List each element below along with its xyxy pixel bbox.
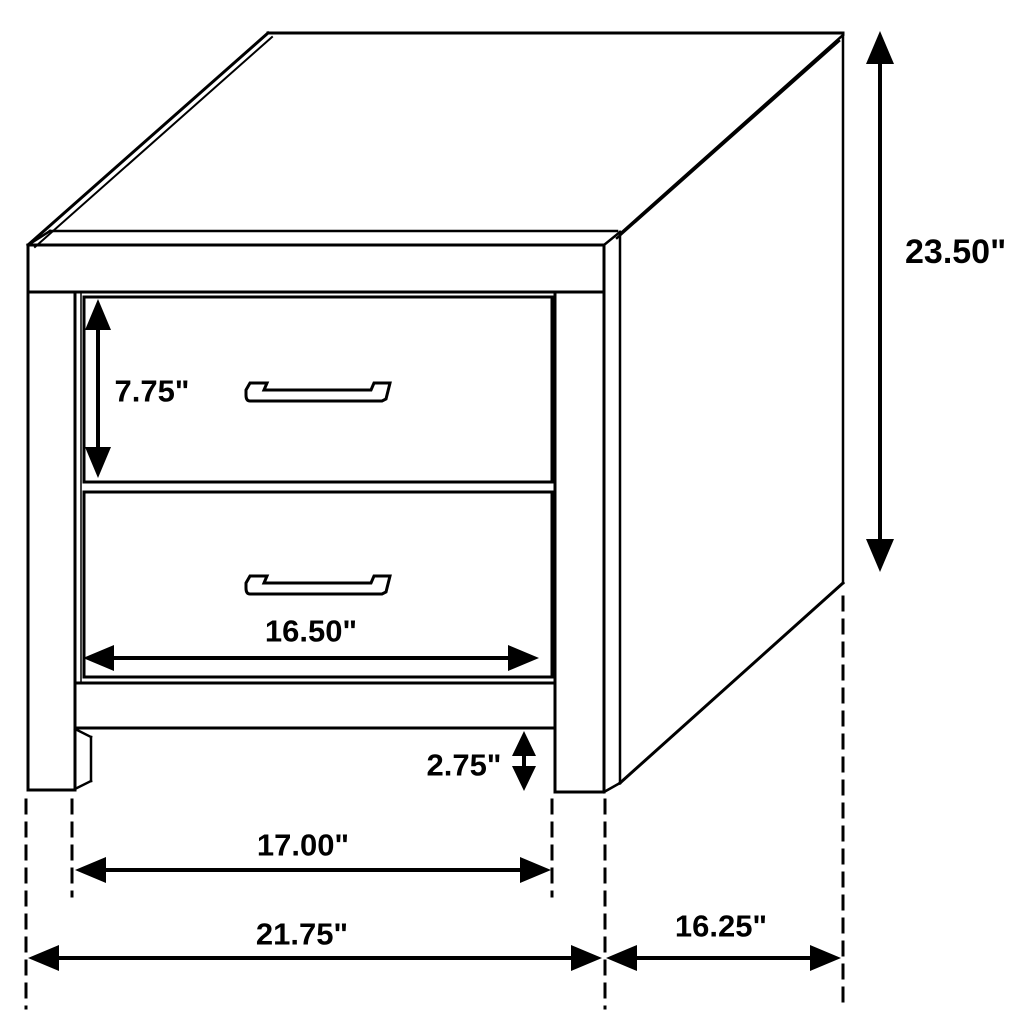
dim-arrow-overall-height [866,31,894,572]
top-right-diagonal-outer [622,35,843,232]
drawer-handle-bottom [246,576,390,594]
arrowhead-down [866,539,894,572]
arrowhead-left [606,945,637,971]
top-left-diagonal-outer [28,33,268,245]
dim-arrow-overall-depth [606,945,841,971]
drawer-handle-top [246,383,390,401]
nightstand-line-drawing [0,0,1024,1024]
dim-label-top-drawer-height: 7.75" [114,376,189,407]
dim-label-leg-span-width: 17.00" [257,830,349,861]
arrowhead-left [83,645,114,671]
arrowhead-right [571,945,602,971]
dim-arrow-top-drawer-height [85,299,111,478]
nightstand-top-face [28,33,843,247]
top-right-diagonal-inner [617,41,839,238]
right-leg-bottom-diag [604,783,620,792]
handle-bar [246,576,390,594]
arrowhead-left [28,945,59,971]
arrowhead-left [75,857,106,883]
arrowhead-right [810,945,841,971]
arrowhead-up [866,31,894,64]
top-left-diagonal-inner [35,37,272,247]
side-bottom-diagonal [620,583,843,783]
dimension-diagram: 23.50" 7.75" 16.50" 2.75" 17.00" 21.75" … [0,0,1024,1024]
dim-label-overall-depth: 16.25" [675,911,767,942]
nightstand-front-frame [28,245,604,792]
arrowhead-down [512,766,536,791]
arrowhead-down [85,447,111,478]
handle-bar [246,383,390,401]
dim-arrow-drawer-width [83,645,539,671]
nightstand-side-panel [604,33,843,783]
dim-label-drawer-width: 16.50" [265,616,357,647]
arrowhead-right [520,857,551,883]
dim-label-overall-width: 21.75" [256,919,348,950]
arrowhead-up [512,731,536,756]
left-leg-inner-diag-top [75,729,91,737]
dim-arrow-leg-height [512,731,536,791]
dim-label-leg-height: 2.75" [426,750,501,781]
left-leg-inner-diag-bottom [75,781,91,789]
dim-label-overall-height: 23.50" [905,235,1006,269]
arrowhead-up [85,299,111,330]
arrowhead-right [508,645,539,671]
legs [28,729,620,792]
